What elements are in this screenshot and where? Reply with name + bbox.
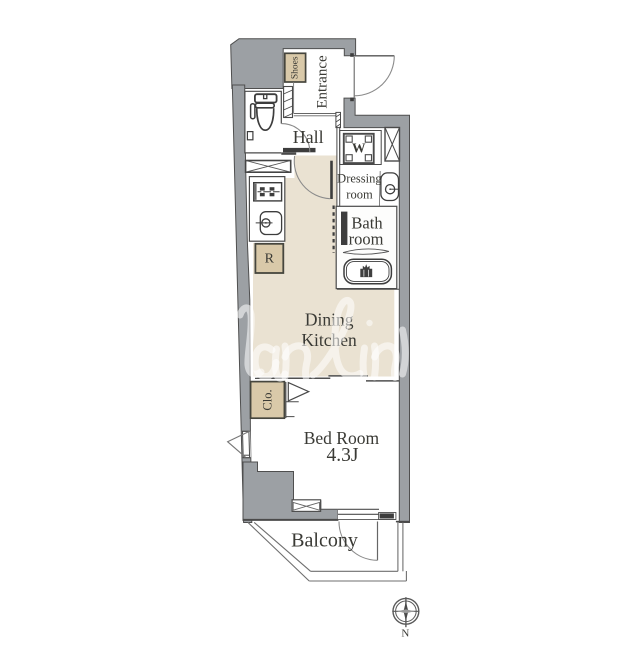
svg-text:Balcony: Balcony — [291, 530, 358, 552]
svg-text:N: N — [401, 628, 409, 640]
svg-text:Hall: Hall — [293, 127, 324, 147]
svg-text:W: W — [352, 141, 366, 156]
svg-text:room: room — [346, 188, 373, 202]
svg-text:4.3J: 4.3J — [327, 445, 359, 466]
svg-text:room: room — [349, 229, 384, 248]
svg-text:Kitchen: Kitchen — [301, 330, 357, 350]
svg-text:Dressing: Dressing — [337, 171, 382, 185]
svg-text:Shoes: Shoes — [290, 56, 300, 79]
svg-text:Entrance: Entrance — [314, 55, 330, 109]
svg-text:R: R — [265, 251, 275, 266]
svg-text:Clo.: Clo. — [261, 389, 275, 410]
